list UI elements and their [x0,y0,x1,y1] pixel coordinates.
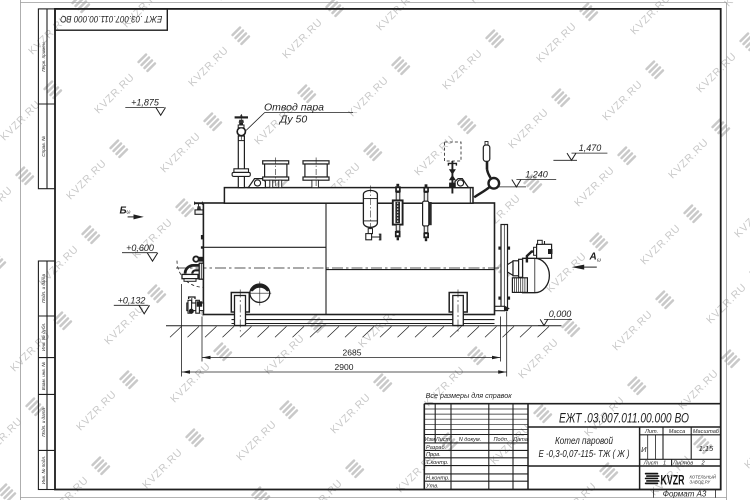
svg-text:KVZR.RU: KVZR.RU [262,332,307,377]
svg-text:KVZR.RU: KVZR.RU [140,446,185,491]
svg-text:Т.контр.: Т.контр. [426,460,449,466]
svg-text:KVZR.RU: KVZR.RU [440,47,485,92]
svg-text:KVZR.RU: KVZR.RU [638,222,683,267]
svg-text:KVZR.RU: KVZR.RU [468,0,513,6]
svg-text:Масса: Масса [669,429,686,435]
svg-text:Подп.: Подп. [493,437,508,443]
svg-text:1:15: 1:15 [699,444,714,453]
svg-text:Лит.: Лит. [644,429,658,435]
svg-text:KVZR.RU: KVZR.RU [186,44,231,89]
svg-text:Подп. и дата: Подп. и дата [41,408,46,437]
svg-text:Ду 50: Ду 50 [279,114,308,126]
svg-text:ЕЖТ .03.007.011.00.000 ВО: ЕЖТ .03.007.011.00.000 ВО [559,409,689,425]
svg-text:KVZR.RU: KVZR.RU [168,360,213,405]
svg-text:Взам. инв. №: Взам. инв. № [41,362,46,390]
svg-text:Подп. и дата: Подп. и дата [41,274,46,303]
svg-text:Справ. №: Справ. № [41,136,46,157]
svg-text:N докум.: N докум. [459,437,482,443]
svg-text:KVZR.RU: KVZR.RU [600,78,645,123]
svg-text:1: 1 [663,461,666,467]
svg-text:Перв. примен.: Перв. примен. [41,41,46,72]
svg-text:KVZR.RU: KVZR.RU [0,415,25,460]
svg-text:А: А [589,252,597,263]
svg-text:+0,600: +0,600 [126,243,154,253]
svg-text:Утв.: Утв. [425,484,439,490]
svg-text:KVZR.RU: KVZR.RU [732,195,750,240]
svg-text:Инв. № подл.: Инв. № подл. [41,456,46,485]
svg-text:Все размеры для справок: Все размеры для справок [426,391,513,400]
svg-text:KVZR.RU: KVZR.RU [234,418,279,463]
svg-text:KVZR.RU: KVZR.RU [102,302,147,347]
svg-text:KVZR.RU: KVZR.RU [742,426,750,471]
svg-text:+1,875: +1,875 [131,97,160,107]
svg-text:2900: 2900 [335,362,354,372]
svg-text:Разраб.: Разраб. [426,445,446,451]
svg-text:KVZR.RU: KVZR.RU [506,106,551,151]
svg-text:Н.контр.: Н.контр. [426,476,450,482]
svg-text:2685: 2685 [343,347,362,357]
svg-text:KVZR.RU: KVZR.RU [130,216,175,261]
svg-text:KVZR.RU: KVZR.RU [328,391,373,436]
svg-text:Дата: Дата [512,437,528,443]
svg-text:ЕЖТ .03.007.011.00.000 ВО: ЕЖТ .03.007.011.00.000 ВО [60,13,163,24]
svg-text:KVZR.RU: KVZR.RU [666,136,711,181]
svg-text:KVZR.RU: KVZR.RU [628,0,673,37]
svg-text:KVZR.RU: KVZR.RU [46,474,91,500]
svg-text:ω: ω [597,258,601,264]
svg-text:1,240: 1,240 [525,170,548,180]
svg-text:KVZR.RU: KVZR.RU [0,184,15,229]
svg-text:Масштаб: Масштаб [693,429,720,435]
svg-text:Отвод пара: Отвод пара [264,101,324,113]
svg-text:Изм: Изм [425,437,436,443]
svg-text:Е -0,3-0,07-115- ТЖ ( Ж ): Е -0,3-0,07-115- ТЖ ( Ж ) [539,449,630,460]
svg-text:Инв. № дубл.: Инв. № дубл. [41,323,46,351]
svg-text:KVZR.RU: KVZR.RU [158,130,203,175]
svg-text:KVZR.RU: KVZR.RU [280,16,325,61]
svg-text:И: И [641,445,647,454]
svg-text:0,000: 0,000 [549,309,572,319]
svg-text:KVZR.RU: KVZR.RU [64,157,109,202]
svg-text:KVZR.RU: KVZR.RU [572,164,617,209]
svg-text:ЗАВОД.РУ: ЗАВОД.РУ [690,480,712,485]
svg-text:Формат А3: Формат А3 [663,490,707,499]
svg-text:KVZR.RU: KVZR.RU [534,20,579,65]
svg-text:KVZR.RU: KVZR.RU [0,98,43,143]
svg-text:KVZR.RU: KVZR.RU [374,0,419,33]
svg-text:1,470: 1,470 [579,143,602,153]
svg-text:KVZR.RU: KVZR.RU [610,308,655,353]
svg-text:Котел паровой: Котел паровой [555,436,613,447]
svg-text:КОТЕЛЬНЫЙ: КОТЕЛЬНЫЙ [690,474,716,479]
svg-text:KVZR.RU: KVZR.RU [422,364,467,409]
svg-text:+0,132: +0,132 [118,295,146,305]
svg-text:Лист: Лист [643,461,659,467]
svg-text:Пров.: Пров. [426,452,441,458]
svg-text:KVZR.RU: KVZR.RU [694,50,739,95]
svg-text:KVZR.RU: KVZR.RU [92,71,137,116]
svg-text:Листов: Листов [672,461,693,467]
svg-text:Лист: Лист [435,437,451,443]
svg-text:KVZR.RU: KVZR.RU [74,388,119,433]
svg-text:KVZR.RU: KVZR.RU [300,477,345,500]
svg-text:KVZR.RU: KVZR.RU [488,422,533,467]
svg-text:ω: ω [127,210,131,216]
svg-text:KVZR: KVZR [661,472,685,487]
svg-text:KVZR.RU: KVZR.RU [676,367,721,412]
svg-text:KVZR.RU: KVZR.RU [516,336,561,381]
